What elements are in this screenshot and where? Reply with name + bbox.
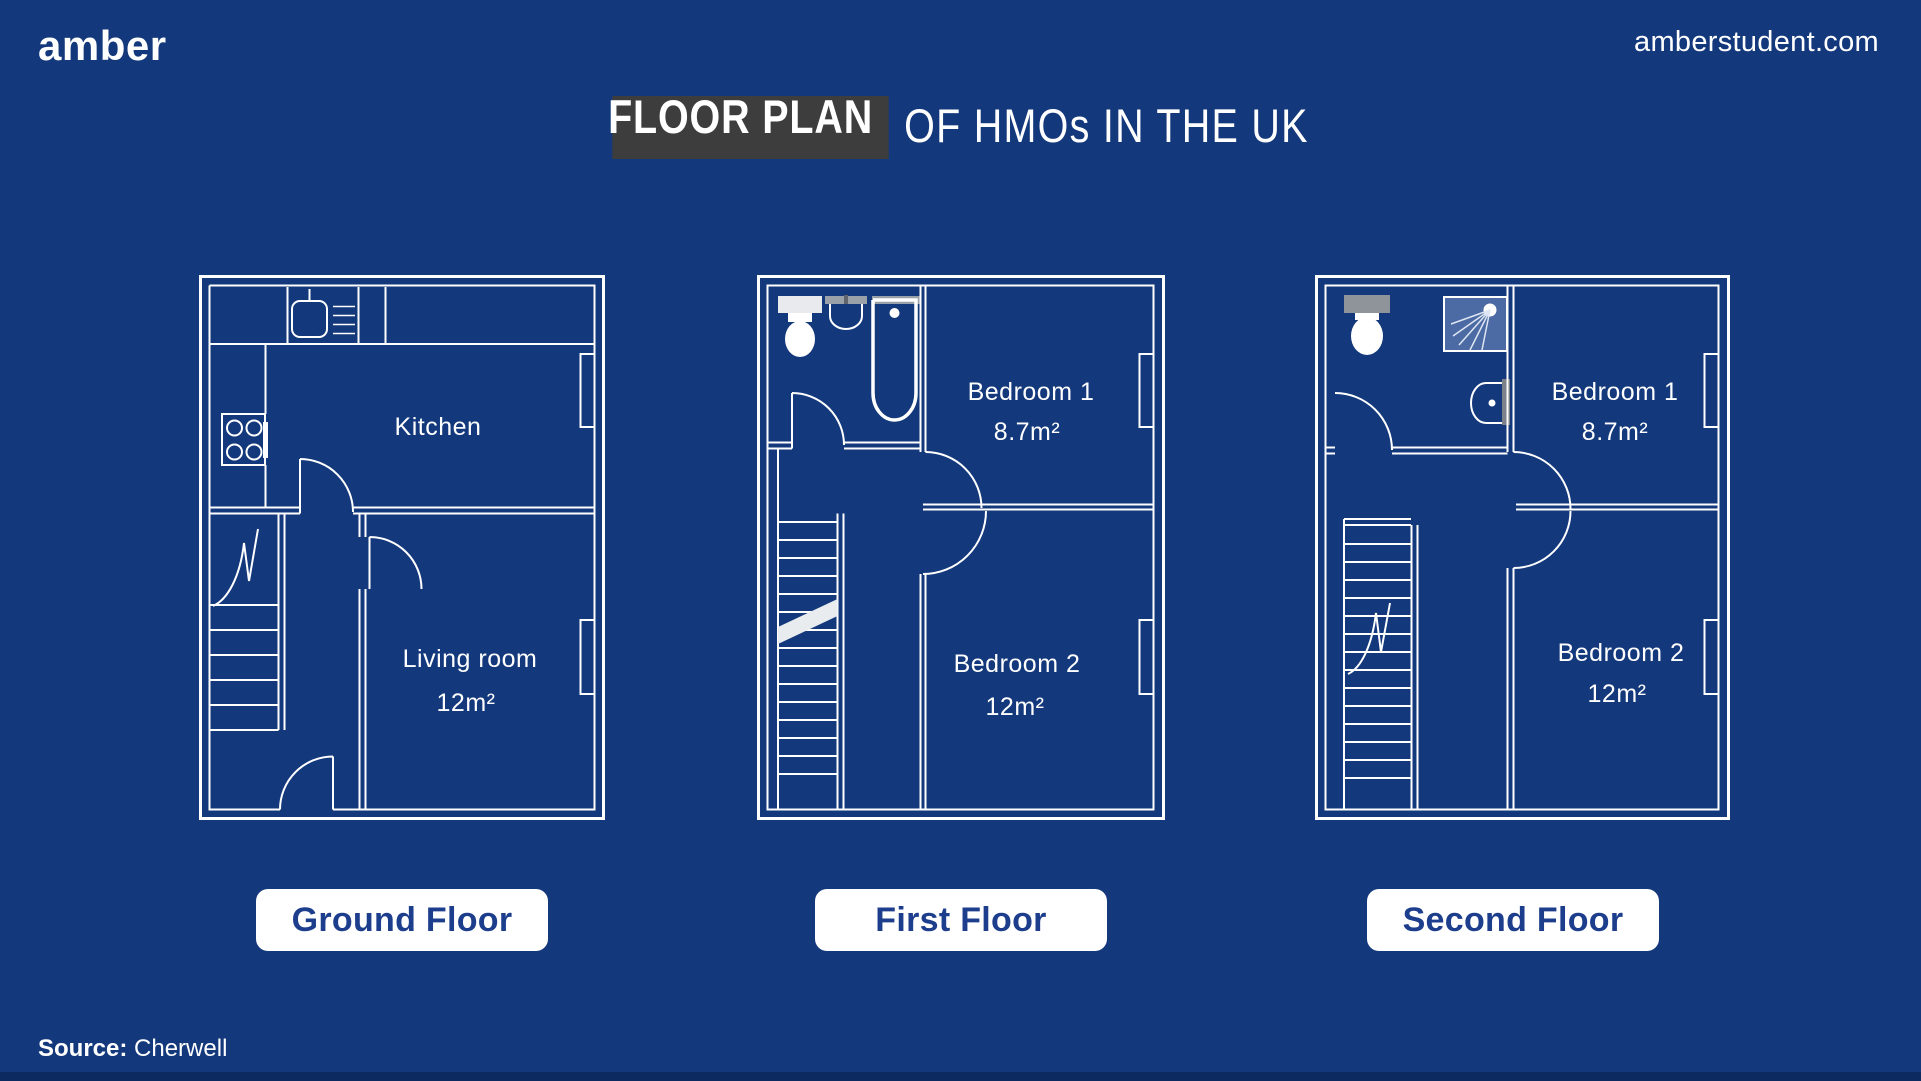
room-label: Bedroom 1 xyxy=(1552,378,1679,406)
door-arc xyxy=(926,452,982,508)
source-label: Source: xyxy=(38,1035,127,1062)
room-label: Bedroom 2 xyxy=(954,650,1081,678)
drain-icon xyxy=(1489,400,1496,407)
stairs xyxy=(210,605,279,730)
door-arc xyxy=(1335,393,1392,450)
kitchen-counter xyxy=(210,287,595,344)
bedroom1-wall xyxy=(921,286,926,453)
source-note: Source: Cherwell xyxy=(38,1035,227,1063)
title-highlight-box: FLOOR PLAN xyxy=(612,96,889,159)
room-area: 12m² xyxy=(437,689,496,717)
room-area: 8.7m² xyxy=(1582,418,1648,446)
toilet-icon xyxy=(778,296,822,313)
source-value: Cherwell xyxy=(134,1035,227,1062)
kitchen-wall xyxy=(210,508,595,514)
stairs xyxy=(1344,544,1412,778)
bedroom2-wall xyxy=(921,574,926,810)
window-icon xyxy=(1705,620,1719,694)
title-highlight-text: FLOOR PLAN xyxy=(608,89,873,144)
sink-icon xyxy=(830,304,862,329)
page-title: FLOOR PLAN OF HMOs IN THE UK xyxy=(154,96,1768,159)
window-icon xyxy=(1705,354,1719,427)
shower-icon xyxy=(1444,297,1507,351)
first-floor-walls xyxy=(759,277,1164,819)
sink-icon xyxy=(1471,383,1502,423)
toilet-icon xyxy=(785,321,815,357)
stairs-up-arrow xyxy=(213,529,258,606)
door-arc xyxy=(792,393,844,449)
stairs xyxy=(778,522,838,774)
drainer-icon xyxy=(333,307,355,334)
drain-icon xyxy=(890,308,900,318)
hall-wall xyxy=(360,514,366,810)
burner-icon xyxy=(227,421,242,436)
window-icon xyxy=(1140,620,1154,694)
burner-icon xyxy=(247,421,262,436)
room-area: 8.7m² xyxy=(994,418,1060,446)
second-floor-walls xyxy=(1317,277,1729,819)
toilet-icon xyxy=(1344,295,1390,313)
outer-wall xyxy=(1317,277,1729,819)
window-icon xyxy=(581,620,595,694)
room-label: Living room xyxy=(403,645,538,673)
room-label: Bedroom 1 xyxy=(968,378,1095,406)
tap-icon xyxy=(844,295,848,304)
ground-floor-label: Ground Floor xyxy=(256,889,548,951)
toilet-icon xyxy=(1351,317,1383,355)
bathroom-wall xyxy=(1326,448,1508,454)
kitchen-sink-icon xyxy=(292,301,327,337)
burner-icon xyxy=(227,445,242,460)
window-icon xyxy=(1140,354,1154,427)
inner-wall xyxy=(768,286,1154,810)
door-arc xyxy=(370,537,422,589)
first-floor-label: First Floor xyxy=(815,889,1107,951)
stairs-direction-band xyxy=(778,599,838,644)
window-icon xyxy=(581,354,595,427)
ground-floor-walls xyxy=(201,277,604,819)
bedroom1-wall xyxy=(1508,286,1514,453)
sink-shelf xyxy=(1502,379,1510,425)
ground-floor-plan: Kitchen Living room 12m² xyxy=(199,275,605,820)
door-arc xyxy=(923,511,986,574)
divider-wall xyxy=(1516,505,1719,510)
first-floor-plan: Bedroom 1 8.7m² Bedroom 2 12m² xyxy=(757,275,1165,820)
burner-icon xyxy=(247,445,262,460)
door-arc xyxy=(1514,511,1571,568)
stove-panel xyxy=(263,422,268,458)
bedroom2-wall xyxy=(1508,568,1514,810)
stair-wall xyxy=(279,514,285,731)
front-door-arc xyxy=(280,757,333,810)
stairs-up-arrow xyxy=(1348,603,1390,674)
amber-logo: amber xyxy=(38,22,167,70)
door-arc xyxy=(300,459,353,514)
room-label: Bedroom 2 xyxy=(1558,639,1685,667)
room-area: 12m² xyxy=(1588,680,1647,708)
divider-wall xyxy=(923,505,1154,510)
room-area: 12m² xyxy=(986,693,1045,721)
door-arc xyxy=(1514,452,1571,509)
room-label: Kitchen xyxy=(395,413,482,441)
toilet-icon xyxy=(788,313,812,322)
footer-strip xyxy=(0,1072,1921,1081)
inner-wall xyxy=(1326,286,1719,810)
second-floor-label: Second Floor xyxy=(1367,889,1659,951)
title-rest-text: OF HMOs IN THE UK xyxy=(904,98,1309,153)
website-url: amberstudent.com xyxy=(1634,26,1879,59)
second-floor-plan: Bedroom 1 8.7m² Bedroom 2 12m² xyxy=(1315,275,1730,820)
